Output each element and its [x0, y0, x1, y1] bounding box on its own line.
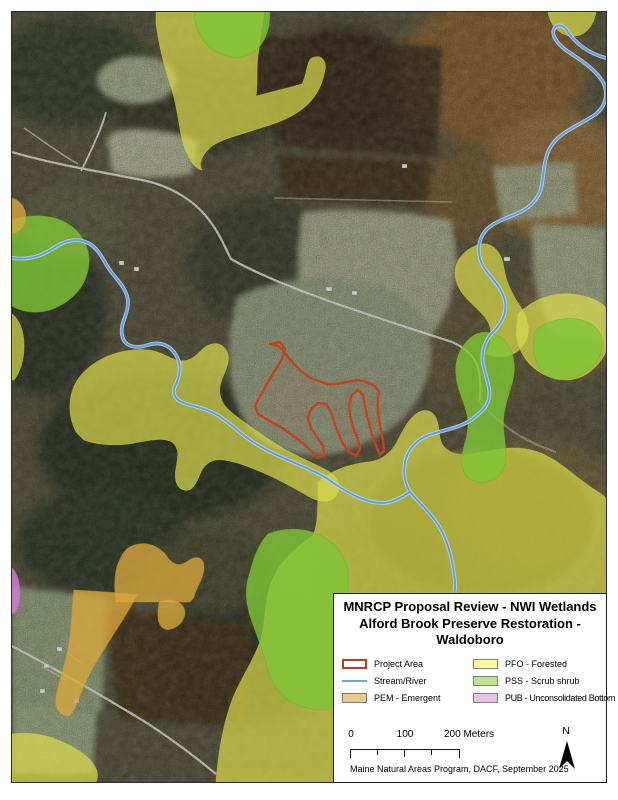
- pfo-forested-symbol: [473, 659, 498, 669]
- legend-label: PUB - Unconsolidated Bottom: [505, 693, 615, 703]
- legend-label: Project Area: [374, 659, 423, 669]
- credits-text: Maine Natural Areas Program, DACF, Septe…: [350, 764, 569, 774]
- stream-river-symbol: [342, 680, 367, 683]
- legend-label: PFO - Forested: [505, 659, 567, 669]
- north-label: N: [556, 725, 576, 737]
- scale-bar: [350, 749, 460, 759]
- scale-label-100: 100: [391, 729, 419, 740]
- legend-label: PEM - Emergent: [374, 693, 441, 703]
- map-title-line: Alford Brook Preserve Restoration -: [336, 616, 604, 633]
- scale-label-200-meters: 200 Meters: [444, 729, 514, 740]
- scale-label-0: 0: [344, 729, 358, 740]
- map-sheet: MNRCP Proposal Review - NWI Wetlands Alf…: [0, 0, 618, 800]
- legend-label: Stream/River: [374, 676, 427, 686]
- legend-item-stream-river: Stream/River: [342, 675, 427, 687]
- map-title-line: Waldoboro: [336, 632, 604, 649]
- legend-item-project-area: Project Area: [342, 658, 423, 670]
- pub-unconsolidated-bottom-symbol: [473, 693, 498, 703]
- map-title-line: MNRCP Proposal Review - NWI Wetlands: [336, 599, 604, 616]
- legend-label: PSS - Scrub shrub: [505, 676, 580, 686]
- legend-item-pss-scrub-shrub: PSS - Scrub shrub: [473, 675, 580, 687]
- legend-box: MNRCP Proposal Review - NWI Wetlands Alf…: [333, 593, 607, 783]
- legend-item-pub-unconsolidated-bottom: PUB - Unconsolidated Bottom: [473, 692, 615, 704]
- legend-item-pem-emergent: PEM - Emergent: [342, 692, 441, 704]
- pem-emergent-symbol: [342, 693, 367, 703]
- map-title: MNRCP Proposal Review - NWI Wetlands Alf…: [336, 599, 604, 649]
- project-area-symbol: [342, 659, 367, 669]
- legend-item-pfo-forested: PFO - Forested: [473, 658, 567, 670]
- pss-scrub-shrub-symbol: [473, 676, 498, 686]
